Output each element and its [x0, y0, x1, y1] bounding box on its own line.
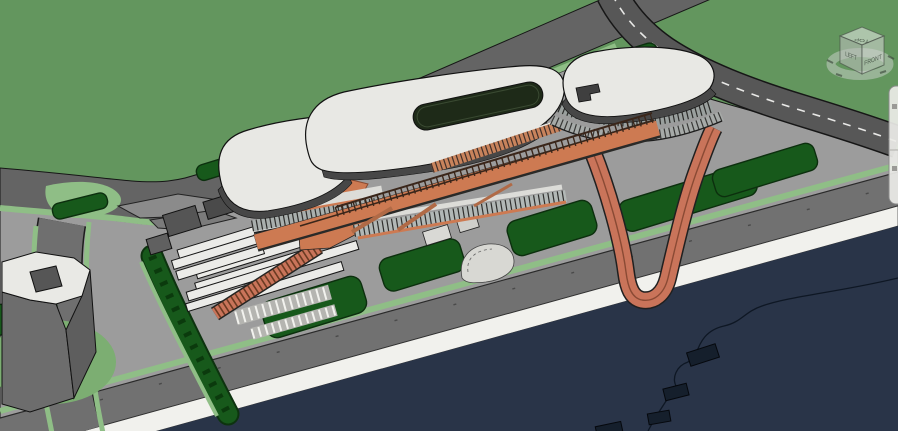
nav-tool-glyph [892, 104, 897, 109]
navigation-bar-fragment[interactable] [889, 86, 898, 204]
3d-model-viewport[interactable]: TOP LEFT FRONT [0, 0, 898, 431]
scene-canvas[interactable]: TOP LEFT FRONT [0, 0, 898, 431]
nav-tool-glyph [892, 166, 897, 171]
